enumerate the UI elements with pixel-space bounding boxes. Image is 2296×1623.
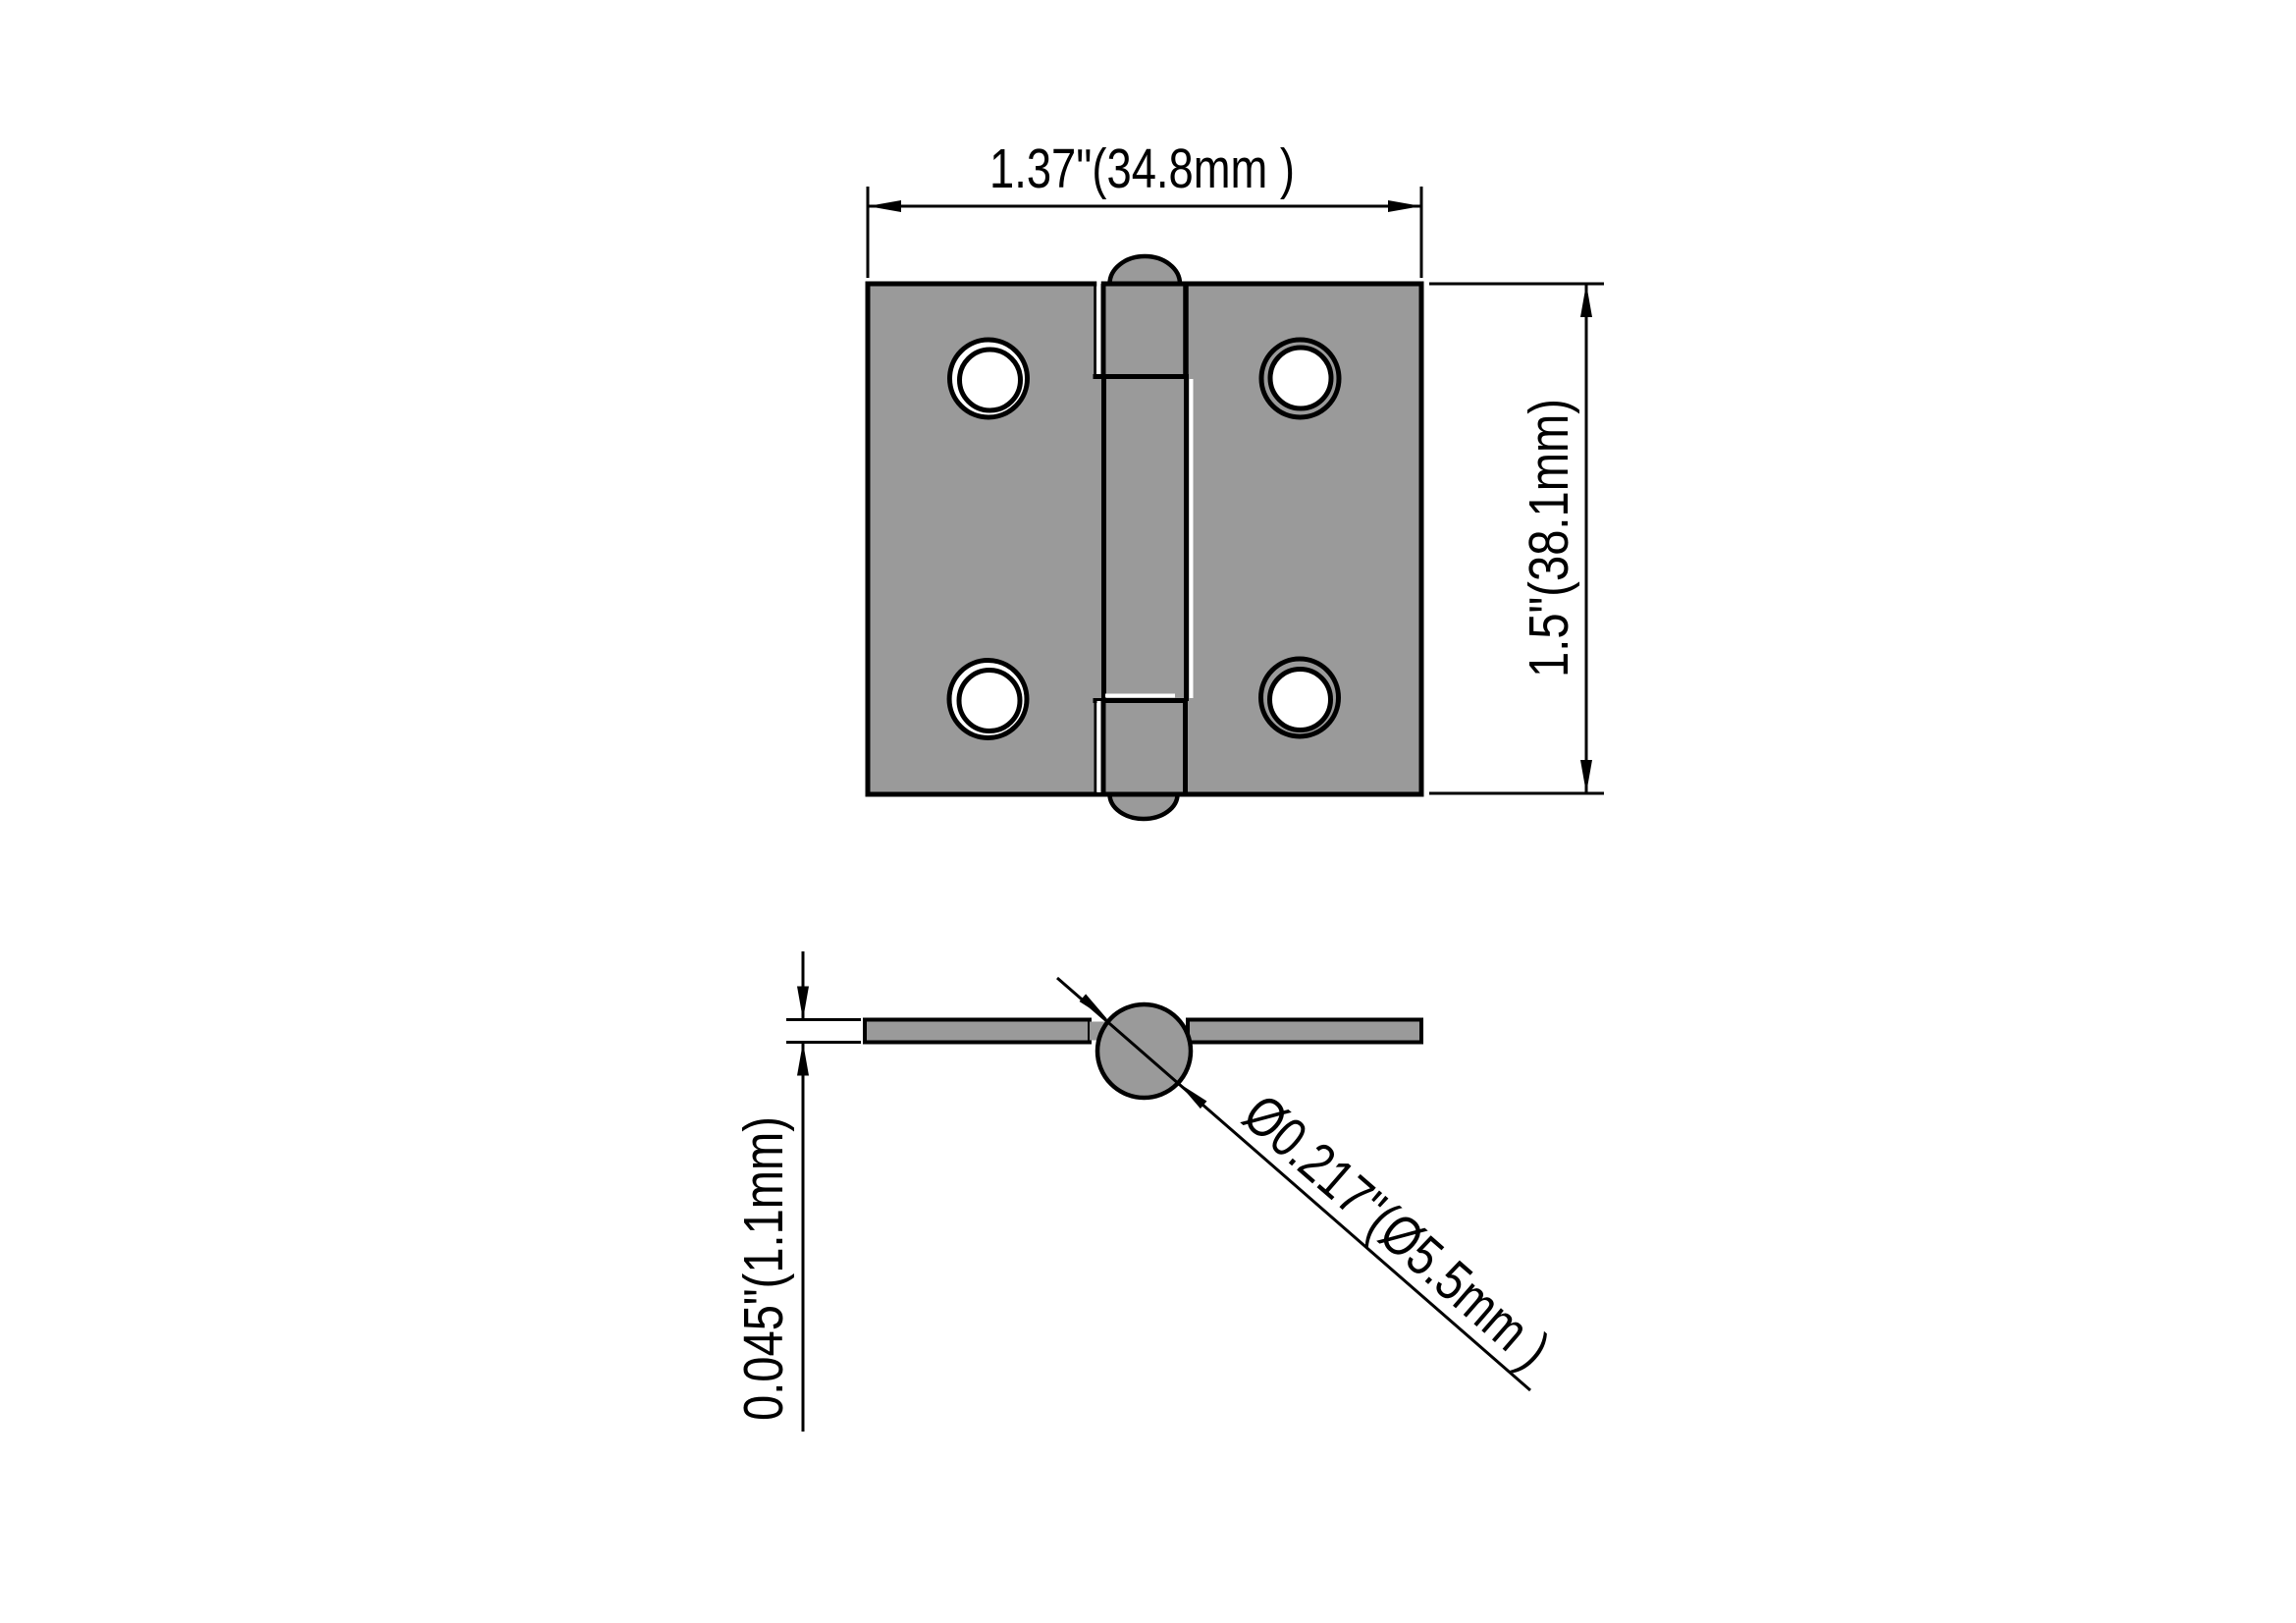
svg-text:1.5"(38.1mm): 1.5"(38.1mm) [1518,399,1580,677]
svg-text:1.37"(34.8mm ): 1.37"(34.8mm ) [989,137,1295,200]
svg-text:0.045"(1.1mm): 0.045"(1.1mm) [732,1116,795,1421]
